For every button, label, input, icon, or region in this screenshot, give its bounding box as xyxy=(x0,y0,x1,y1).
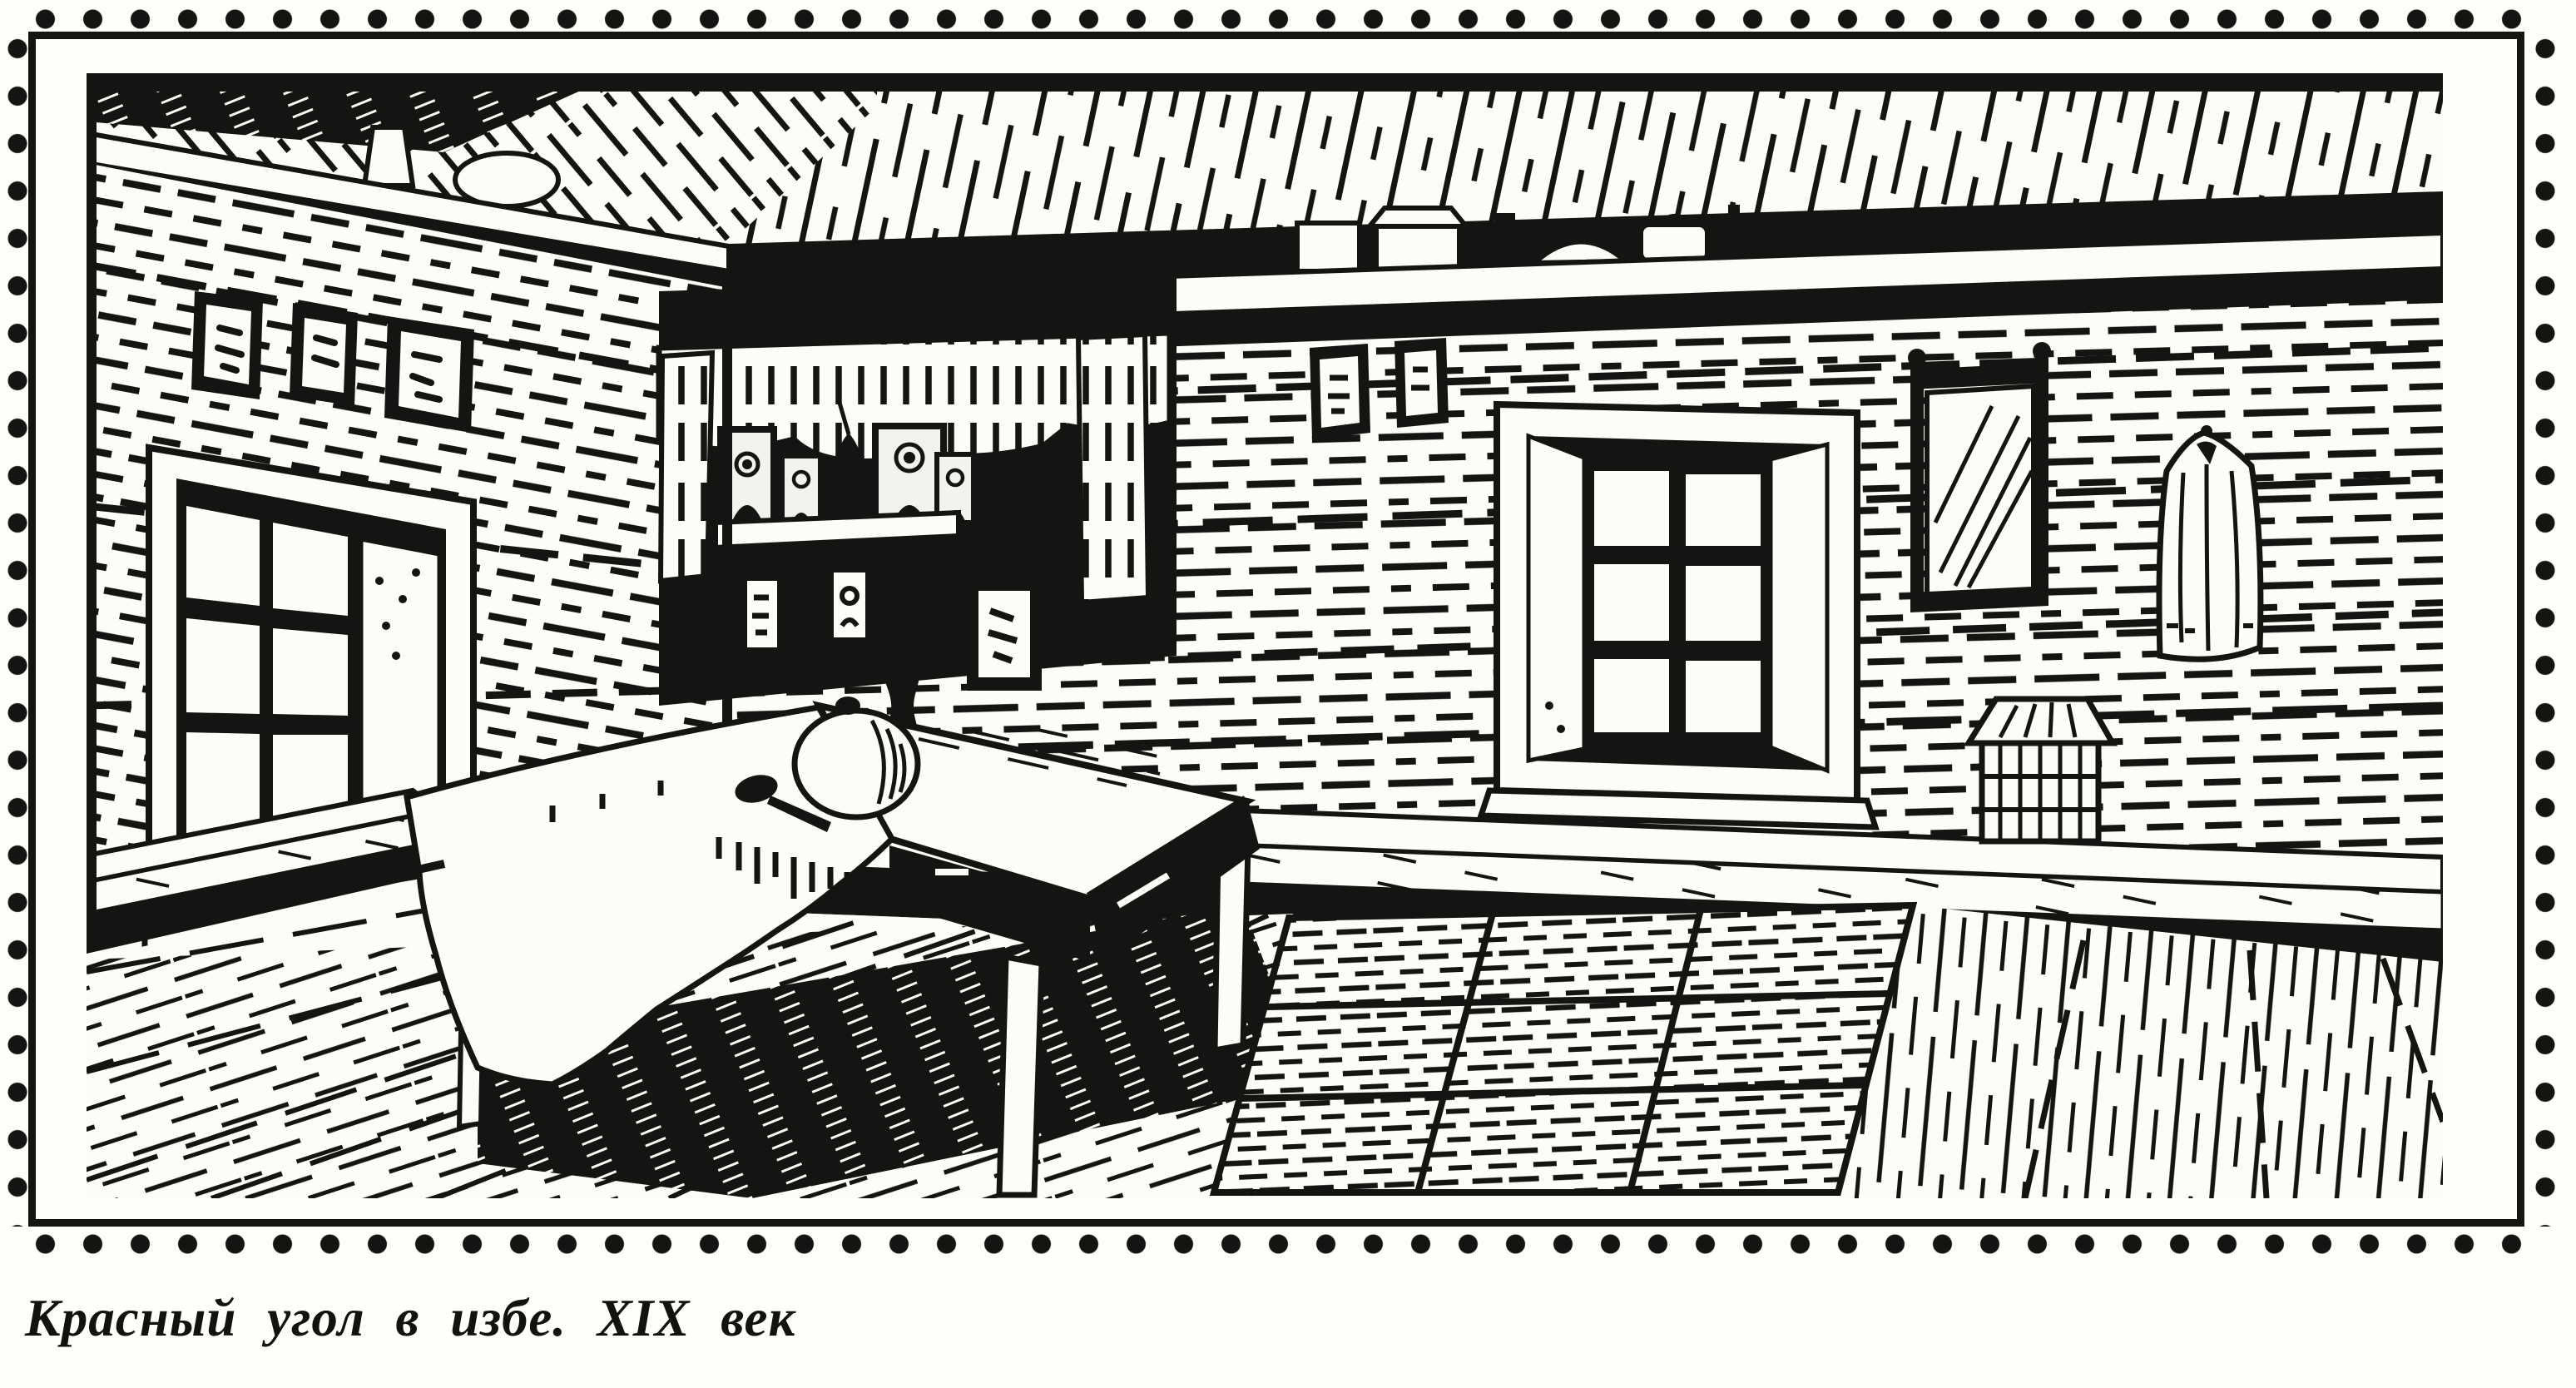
icon xyxy=(875,426,944,526)
rag-rug xyxy=(1214,905,1913,1192)
casket-lid xyxy=(1370,208,1466,226)
icon xyxy=(782,456,820,526)
mirror-finial xyxy=(2033,342,2051,360)
curtain-left xyxy=(661,353,712,581)
lower-print xyxy=(967,578,1042,691)
mirror xyxy=(1908,342,2051,612)
figure-caption: Красный угол в избе. XIX век xyxy=(25,1288,795,1349)
window-curtain xyxy=(361,539,439,820)
perforation-dots-top xyxy=(17,5,2538,33)
curtain-right xyxy=(1078,335,1148,602)
mirror-finial xyxy=(1908,349,1926,367)
lower-print xyxy=(824,561,875,649)
caption-text: Красный угол в избе. XIX век xyxy=(25,1289,795,1347)
wicker-chest xyxy=(1969,699,2113,841)
cup xyxy=(364,127,413,186)
perforation-dots-right xyxy=(2531,20,2559,1227)
window-jamb-right xyxy=(1771,444,1827,771)
lower-print xyxy=(737,569,787,659)
box xyxy=(1297,223,1360,271)
casket xyxy=(1376,226,1459,270)
perforation-dots-bottom xyxy=(17,1230,2538,1258)
perforation-dots-left xyxy=(3,20,32,1227)
book-page: Красный угол в избе. XIX век xyxy=(0,0,2576,1388)
table-leg-front xyxy=(999,957,1042,1195)
chest-lid xyxy=(1969,699,2113,743)
hanging-coat xyxy=(2159,425,2261,659)
window-jamb-left xyxy=(1528,436,1584,761)
izba-engraving xyxy=(87,73,2443,1198)
back-window xyxy=(1481,404,1875,827)
